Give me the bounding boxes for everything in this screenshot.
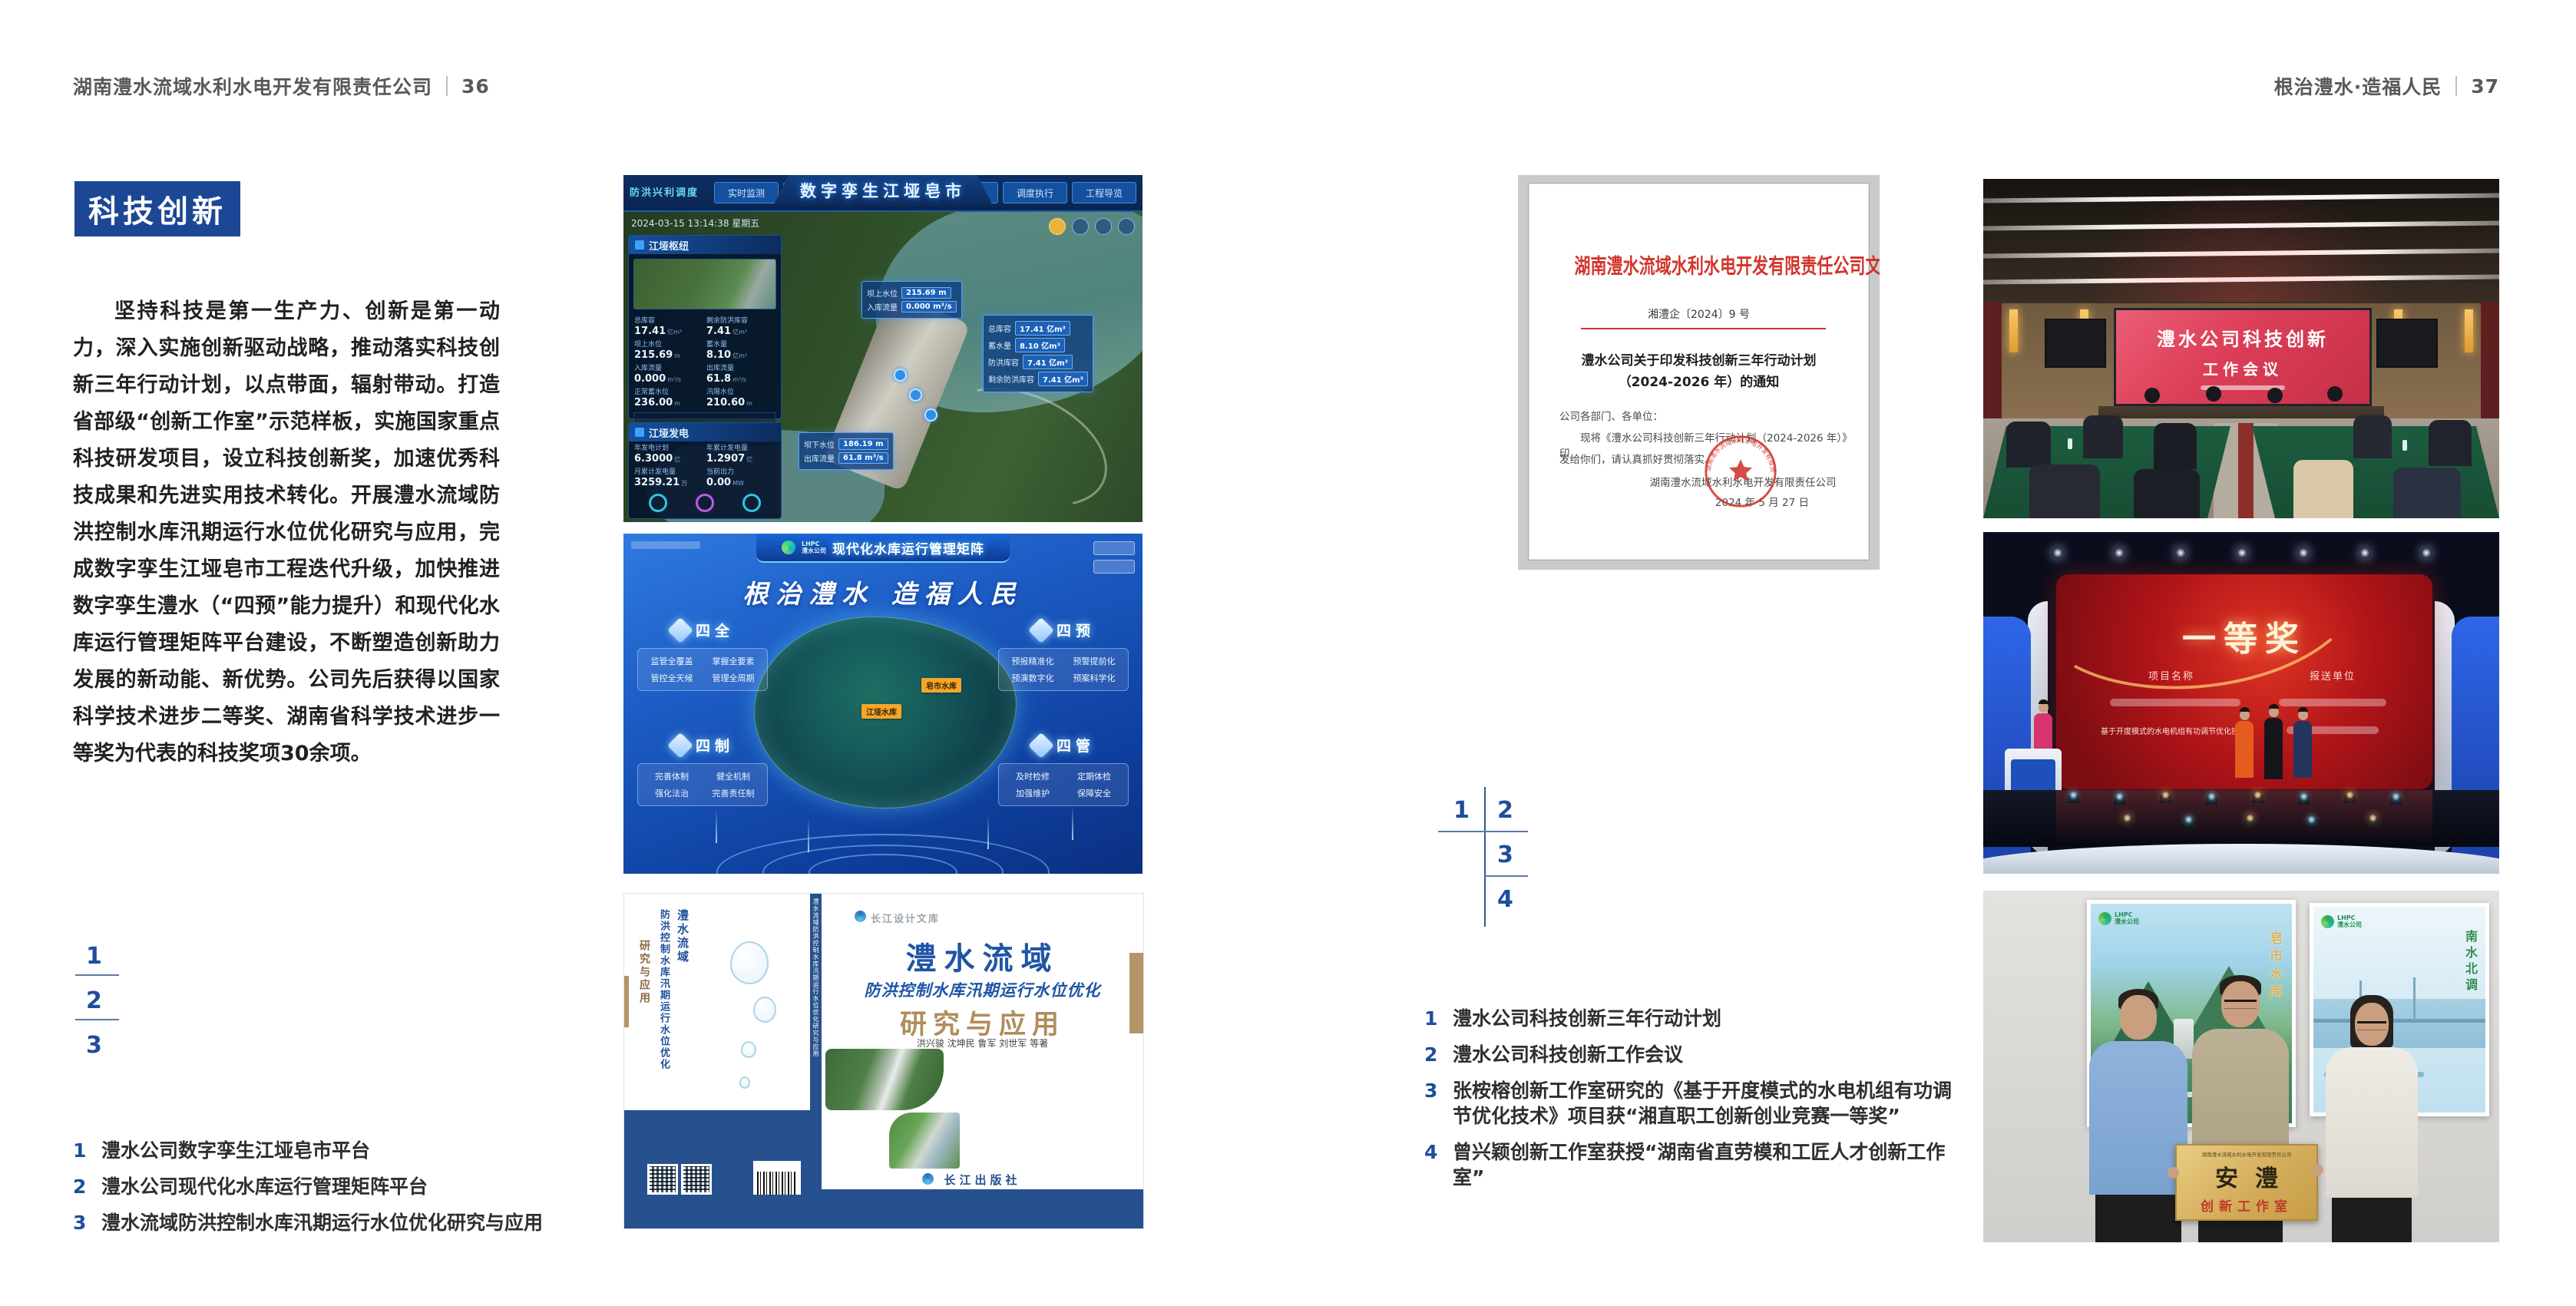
matrix-group-sizhi: 四制 完善体制 健全机制 强化法治 完善责任制: [637, 735, 768, 806]
hand: [2312, 1164, 2323, 1175]
lhpc-logo-icon: [782, 541, 795, 554]
section-title-badge: 科技创新: [74, 181, 240, 236]
map-marker-zaoshi: 皂市水库: [921, 678, 961, 693]
man-left-head: [2120, 995, 2157, 1040]
dashboard-timestamp: 2024-03-15 13:14:38 星期五: [631, 217, 759, 230]
stat: 坝上水位215.69m: [634, 339, 703, 362]
stage-front-edge: [1983, 844, 2499, 874]
turbine-gauges: [629, 491, 781, 517]
water-droplet: [741, 1041, 756, 1058]
callout-storage: 总库容17.41 亿m³ 蓄水量8.10 亿m³ 防洪库容7.41 亿m³ 剩余…: [983, 315, 1093, 392]
screen-text-bar: [2110, 699, 2240, 706]
stat: 出库流量61.8m³/s: [706, 363, 775, 385]
lhpc-logo: LHPC澧水公司: [2098, 911, 2139, 925]
matrix-group-siguan: 四管 及时检修 定期体检 加强维护 保障安全: [998, 735, 1129, 806]
water-bottle: [2402, 440, 2407, 451]
side-screen: [2376, 319, 2438, 368]
callout-upstream: 坝上水位215.69 m 入库流量0.000 m³/s: [861, 281, 962, 319]
gauge-icon: [696, 494, 714, 512]
water-droplet: [753, 997, 776, 1023]
figure-book-cover: 澧水流域 防洪控制水库汛期运行水位优化 研究与应用 澧水流域防洪控制水库汛期运行…: [623, 893, 1144, 1229]
stat: 剩余防洪库容7.41亿m³: [706, 316, 775, 338]
light-pillar: [1072, 806, 1073, 840]
group-icon: [667, 732, 693, 759]
series-name: 长江设计文库: [822, 911, 1144, 925]
right-caption-list: 1澧水公司科技创新三年行动计划 2澧水公司科技创新工作会议 3张桉榕创新工作室研…: [1424, 1006, 1962, 1201]
figure-marker: 1: [1453, 797, 1470, 824]
hub-stats: 总库容17.41亿m³ 剩余防洪库容7.41亿m³ 坝上水位215.69m 蓄水…: [629, 314, 781, 411]
notice-title-line1: 澧水公司关于印发科技创新三年行动计划: [1529, 349, 1869, 369]
page-number-left: 36: [461, 75, 490, 98]
dashboard-toolbar-icons: [1049, 218, 1135, 235]
winner-hair: [2240, 707, 2250, 712]
power-panel-header: 江垭发电: [629, 423, 781, 441]
lhpc-logo-icon: [2321, 915, 2334, 928]
callout-row: 蓄水量8.10 亿m³: [988, 338, 1088, 352]
back-title-2: 研究与应用: [637, 940, 652, 1005]
back-title-sub: 防洪控制水库汛期运行水位优化: [656, 909, 671, 1070]
attendee: [2006, 422, 2051, 468]
front-cover-band: [624, 1189, 1143, 1228]
stat: 入库流量0.000m³/s: [634, 363, 703, 385]
gauge-icon: [649, 494, 667, 512]
callout-row: 总库容17.41 亿m³: [988, 321, 1088, 336]
stage-light: [2367, 818, 2379, 826]
callout-downstream: 坝下水位186.19 m 出库流量61.8 m³/s: [799, 432, 894, 470]
sconce-light: [2465, 309, 2473, 352]
hand: [2168, 1167, 2179, 1179]
bridge-pylon: [2413, 977, 2416, 1020]
book-title: 澧水流域: [822, 934, 1143, 978]
figure-marker: 2: [86, 987, 102, 1014]
poster-left-title: 皂市水库: [2265, 931, 2284, 1002]
dashboard-top-bar: 防洪兴利调度 实时监测 洪水预报 防洪预警 气象预测 预案生成 调度执行 工程导…: [623, 175, 1143, 212]
power-panel: 江垭发电 年发电计划6.3000亿 年累计发电量1.2907亿 月累计发电量32…: [628, 422, 782, 519]
callout-row: 坝上水位215.69 m: [867, 287, 957, 299]
caption-item: 3张桉榕创新工作室研究的《基于开度模式的水电机组有功调节优化技术》项目获“湘直职…: [1424, 1078, 1962, 1129]
attendee: [2393, 468, 2461, 518]
winner-orange-jacket: [2235, 721, 2254, 778]
gate-marker-icon: [924, 408, 937, 422]
matrix-title: 现代化水库运行管理矩阵: [832, 538, 984, 557]
stage-light: [2298, 796, 2310, 805]
qr-code: [681, 1164, 712, 1195]
gate-marker-icon: [909, 388, 922, 402]
host-hair: [2039, 699, 2049, 704]
water-bottle: [2068, 438, 2072, 449]
innovation-studio-plaque: 湖南澧水流域水利水电开发有限责任公司 安澧 创新工作室: [2175, 1144, 2318, 1221]
screen-glow: [2086, 179, 2396, 302]
side-screen: [2045, 319, 2106, 368]
woman-white-tee: [2326, 1047, 2418, 1198]
matrix-button: [1093, 560, 1135, 574]
stat: 年累计发电量1.2907亿: [706, 443, 775, 465]
header-divider: [2455, 76, 2457, 96]
matrix-group-siquan: 四全 监管全覆盖 掌握全要素 管控全天候 管理全周期: [637, 620, 768, 691]
attendee-cream-cardigan: [2293, 460, 2353, 518]
stage-light: [2206, 796, 2217, 805]
front-tan-bar: [1129, 953, 1143, 1033]
figure-marker: 1: [86, 943, 102, 970]
stage-light: [2183, 819, 2194, 828]
person-silhouette: [2144, 388, 2160, 403]
stage-light: [2160, 795, 2171, 803]
powerhouse-photo: [889, 1113, 960, 1169]
attendee: [2353, 415, 2392, 458]
sconce-light: [2009, 309, 2018, 352]
marker-grid-vline: [1484, 787, 1486, 927]
person-silhouette: [2267, 388, 2283, 403]
figure-matrix-platform: LHPC澧水公司 现代化水库运行管理矩阵 根治澧水 造福人民 皂市水库 江垭水库…: [623, 534, 1143, 874]
panel-icon: [635, 240, 644, 250]
publisher-name: 长江出版社: [822, 1172, 1143, 1188]
caption-item: 1澧水公司科技创新三年行动计划: [1424, 1006, 1962, 1031]
caption-item: 2澧水公司科技创新工作会议: [1424, 1042, 1962, 1067]
salutation: 公司各部门、各单位：: [1559, 408, 1849, 423]
company-name: 湖南澧水流域水利水电开发有限责任公司: [73, 72, 432, 100]
stage-light: [2068, 795, 2079, 803]
light-pillar: [716, 809, 717, 843]
screen-text-bar: [2279, 699, 2386, 706]
stage-light: [2252, 795, 2264, 803]
lhpc-logo-text: LHPC澧水公司: [802, 541, 826, 554]
plaque-studio-label: 创新工作室: [2177, 1195, 2316, 1215]
header-divider: [446, 76, 448, 96]
group-icon: [1028, 617, 1054, 643]
body-paragraph: 坚持科技是第一生产力、创新是第一动力，深入实施创新驱动战略，推动落实科技创新三年…: [73, 293, 500, 772]
page-number-right: 37: [2471, 75, 2499, 98]
water-droplet: [739, 1076, 750, 1089]
wall-pillar: [1983, 302, 2002, 436]
stage-light: [2244, 818, 2256, 826]
woman-glasses-icon: [2357, 1021, 2386, 1030]
stat: 蓄水量8.10亿m³: [706, 339, 775, 362]
screen-text-line2: 工作会议: [2203, 357, 2283, 379]
photo-studio-plaque-group: LHPC澧水公司 皂市水库 LHPC澧水公司 南水北调 湖南澧水流域水利水电开发…: [1983, 891, 2499, 1242]
stat: 总库容17.41亿m³: [634, 316, 703, 338]
stage-light: [2390, 796, 2402, 805]
marker-divider: [75, 974, 119, 976]
red-seal-icon: 湖南澧水流域水利水电开发有限责任公司: [1699, 429, 1782, 512]
notice-title-line2: （2024-2026 年）的通知: [1529, 371, 1869, 390]
callout-row: 防洪库容7.41 亿m³: [988, 355, 1088, 369]
caption-item: 1澧水公司数字孪生江垭皂市平台: [73, 1138, 549, 1163]
plaque-calligraphy: 安澧: [2177, 1159, 2316, 1193]
stage-light: [2121, 818, 2133, 826]
stage-light: [2306, 819, 2317, 828]
plaque-company-line: 湖南澧水流域水利水电开发有限责任公司: [2177, 1150, 2316, 1158]
marker-divider: [75, 1019, 119, 1020]
caption-item: 4曾兴颖创新工作室获授“湖南省直劳模和工匠人才创新工作室”: [1424, 1139, 1962, 1190]
light-pillar: [987, 815, 989, 849]
presenter-dark-suit: [2264, 718, 2283, 779]
figure-official-document: 湖南澧水流域水利水电开发有限责任公司文件 湘澧企〔2024〕9 号 澧水公司关于…: [1518, 175, 1880, 570]
matrix-button: [1093, 541, 1135, 555]
left-page-header: 湖南澧水流域水利水电开发有限责任公司 36: [73, 72, 490, 100]
slogan-text: 根治澧水·造福人民: [2274, 72, 2442, 100]
book-authors: 洪兴骏 沈坤民 鲁军 刘世军 等著: [822, 1037, 1143, 1050]
person-silhouette: [2206, 386, 2221, 402]
callout-row: 坝下水位186.19 m: [804, 438, 888, 450]
figure-marker: 4: [1497, 886, 1513, 913]
spotlight: [2421, 547, 2432, 558]
book-spine: 澧水流域防洪控制水库汛期运行水位优化研究与应用: [810, 894, 822, 1228]
project-name-text: 基于开度模式的水电机组有功调节优化技术: [2101, 725, 2247, 736]
panel-icon: [635, 428, 644, 437]
user-icon: [1049, 218, 1066, 235]
presenter-hair: [2269, 704, 2279, 709]
back-tan-tab: [624, 976, 629, 1027]
stat: 年发电计划6.3000亿: [634, 443, 703, 465]
dam-photo: [825, 1049, 944, 1110]
stat: 当前出力0.00MW: [706, 467, 775, 489]
attendee: [2083, 415, 2123, 458]
figure-marker: 3: [1497, 841, 1513, 868]
back-title-main: 澧水流域: [675, 909, 691, 964]
ceiling: [1983, 179, 2499, 303]
tab-project-tour: 工程导览: [1072, 182, 1136, 203]
attendee: [2154, 423, 2197, 469]
stat: 正常蓄水位236.00m: [634, 387, 703, 409]
matrix-date-placeholder: [631, 541, 700, 549]
bridge-shape: [2313, 999, 2485, 1048]
map-marker-jiangya: 江垭水库: [861, 704, 901, 719]
water-droplet: [730, 941, 769, 984]
dam-thumbnail: [633, 259, 776, 309]
document-paper: 湖南澧水流域水利水电开发有限责任公司文件 湘澧企〔2024〕9 号 澧水公司关于…: [1528, 183, 1870, 560]
gauge-icon: [742, 494, 761, 512]
winner2-hair: [2298, 707, 2308, 712]
marker-grid-hline: [1438, 831, 1528, 832]
matrix-header: LHPC澧水公司 现代化水库运行管理矩阵: [756, 534, 1010, 563]
document-red-header: 湖南澧水流域水利水电开发有限责任公司文件: [1529, 250, 1869, 279]
poster-right-title: 南水北调: [2461, 930, 2479, 994]
figure-marker: 2: [1497, 797, 1513, 824]
document-number: 湘澧企〔2024〕9 号: [1529, 306, 1869, 322]
gate-marker-icon: [894, 369, 907, 382]
photo-award-ceremony: 一等奖 项目名称 报送单位 基于开度模式的水电机组有功调节优化技术: [1983, 532, 2499, 874]
winner-navy-jacket: [2293, 721, 2312, 778]
callout-row: 出库流量61.8 m³/s: [804, 452, 888, 464]
hub-panel-header: 江垭枢纽: [629, 236, 781, 254]
left-caption-list: 1澧水公司数字孪生江垭皂市平台 2澧水公司现代化水库运行管理矩阵平台 3澧水流域…: [73, 1138, 549, 1246]
hub-panel: 江垭枢纽 总库容17.41亿m³ 剩余防洪库容7.41亿m³ 坝上水位215.6…: [628, 235, 782, 419]
group-icon: [1028, 732, 1054, 759]
power-stats: 年发电计划6.3000亿 年累计发电量1.2907亿 月累计发电量3259.21…: [629, 441, 781, 491]
barcode: [753, 1161, 801, 1195]
callout-row: 入库流量0.000 m³/s: [867, 301, 957, 312]
matrix-slogan: 根治澧水 造福人民: [623, 574, 1143, 610]
book-subtitle: 防洪控制水库汛期运行水位优化: [822, 978, 1143, 1001]
man-left-pants: [2095, 1195, 2181, 1242]
red-carpet-strip: [2238, 423, 2254, 518]
callout-row: 剩余防洪库容7.41 亿m³: [988, 372, 1088, 386]
red-rule: [1581, 328, 1826, 329]
attendee: [2134, 469, 2200, 518]
figure-digital-twin-dashboard: 防洪兴利调度 实时监测 洪水预报 防洪预警 气象预测 预案生成 调度执行 工程导…: [623, 175, 1143, 522]
first-prize-title: 一等奖: [2056, 611, 2432, 660]
man-center-glasses-icon: [2224, 1000, 2257, 1009]
dashboard-brand: 防洪兴利调度: [630, 184, 699, 199]
attendee: [2029, 465, 2100, 518]
caption-item: 2澧水公司现代化水库运行管理矩阵平台: [73, 1174, 549, 1199]
group-icon: [667, 617, 693, 643]
screen-text-line1: 澧水公司科技创新: [2157, 324, 2329, 351]
marker-grid-hline: [1484, 875, 1528, 877]
stage-light: [2114, 796, 2125, 805]
settings-icon: [1118, 218, 1135, 235]
woman-pants: [2332, 1198, 2412, 1242]
stat: 汛限水位210.60m: [706, 387, 775, 409]
lhpc-logo: LHPC澧水公司: [2321, 914, 2362, 928]
stat: 月累计发电量3259.21万: [634, 467, 703, 489]
right-page-header: 根治澧水·造福人民 37: [2274, 72, 2499, 100]
person-silhouette: [2327, 386, 2343, 402]
stage-light: [2344, 795, 2356, 803]
spotlight: [2052, 547, 2063, 558]
column-project-name: 项目名称: [2148, 668, 2194, 683]
lhpc-logo-icon: [2098, 912, 2111, 925]
qr-code: [647, 1164, 678, 1195]
tab-dispatch-execution: 调度执行: [1003, 182, 1067, 203]
locate-icon: [1095, 218, 1112, 235]
light-pillar: [808, 818, 809, 852]
tab-realtime-monitoring: 实时监测: [714, 182, 779, 203]
attendee: [2429, 420, 2472, 466]
dashboard-title: 数字孪生江垭皂市: [773, 175, 993, 206]
photo-innovation-meeting: 澧水公司科技创新 工作会议: [1983, 179, 2499, 518]
figure-marker: 3: [86, 1032, 102, 1059]
wall-pillar: [2481, 302, 2499, 436]
spotlight: [2359, 547, 2370, 558]
matrix-group-siyu: 四预 预报精准化 预警提前化 预演数字化 预案科学化: [998, 620, 1129, 691]
caption-item: 3澧水流域防洪控制水库汛期运行水位优化研究与应用: [73, 1210, 549, 1235]
layers-icon: [1072, 218, 1089, 235]
column-submitting-unit: 报送单位: [2310, 668, 2356, 683]
